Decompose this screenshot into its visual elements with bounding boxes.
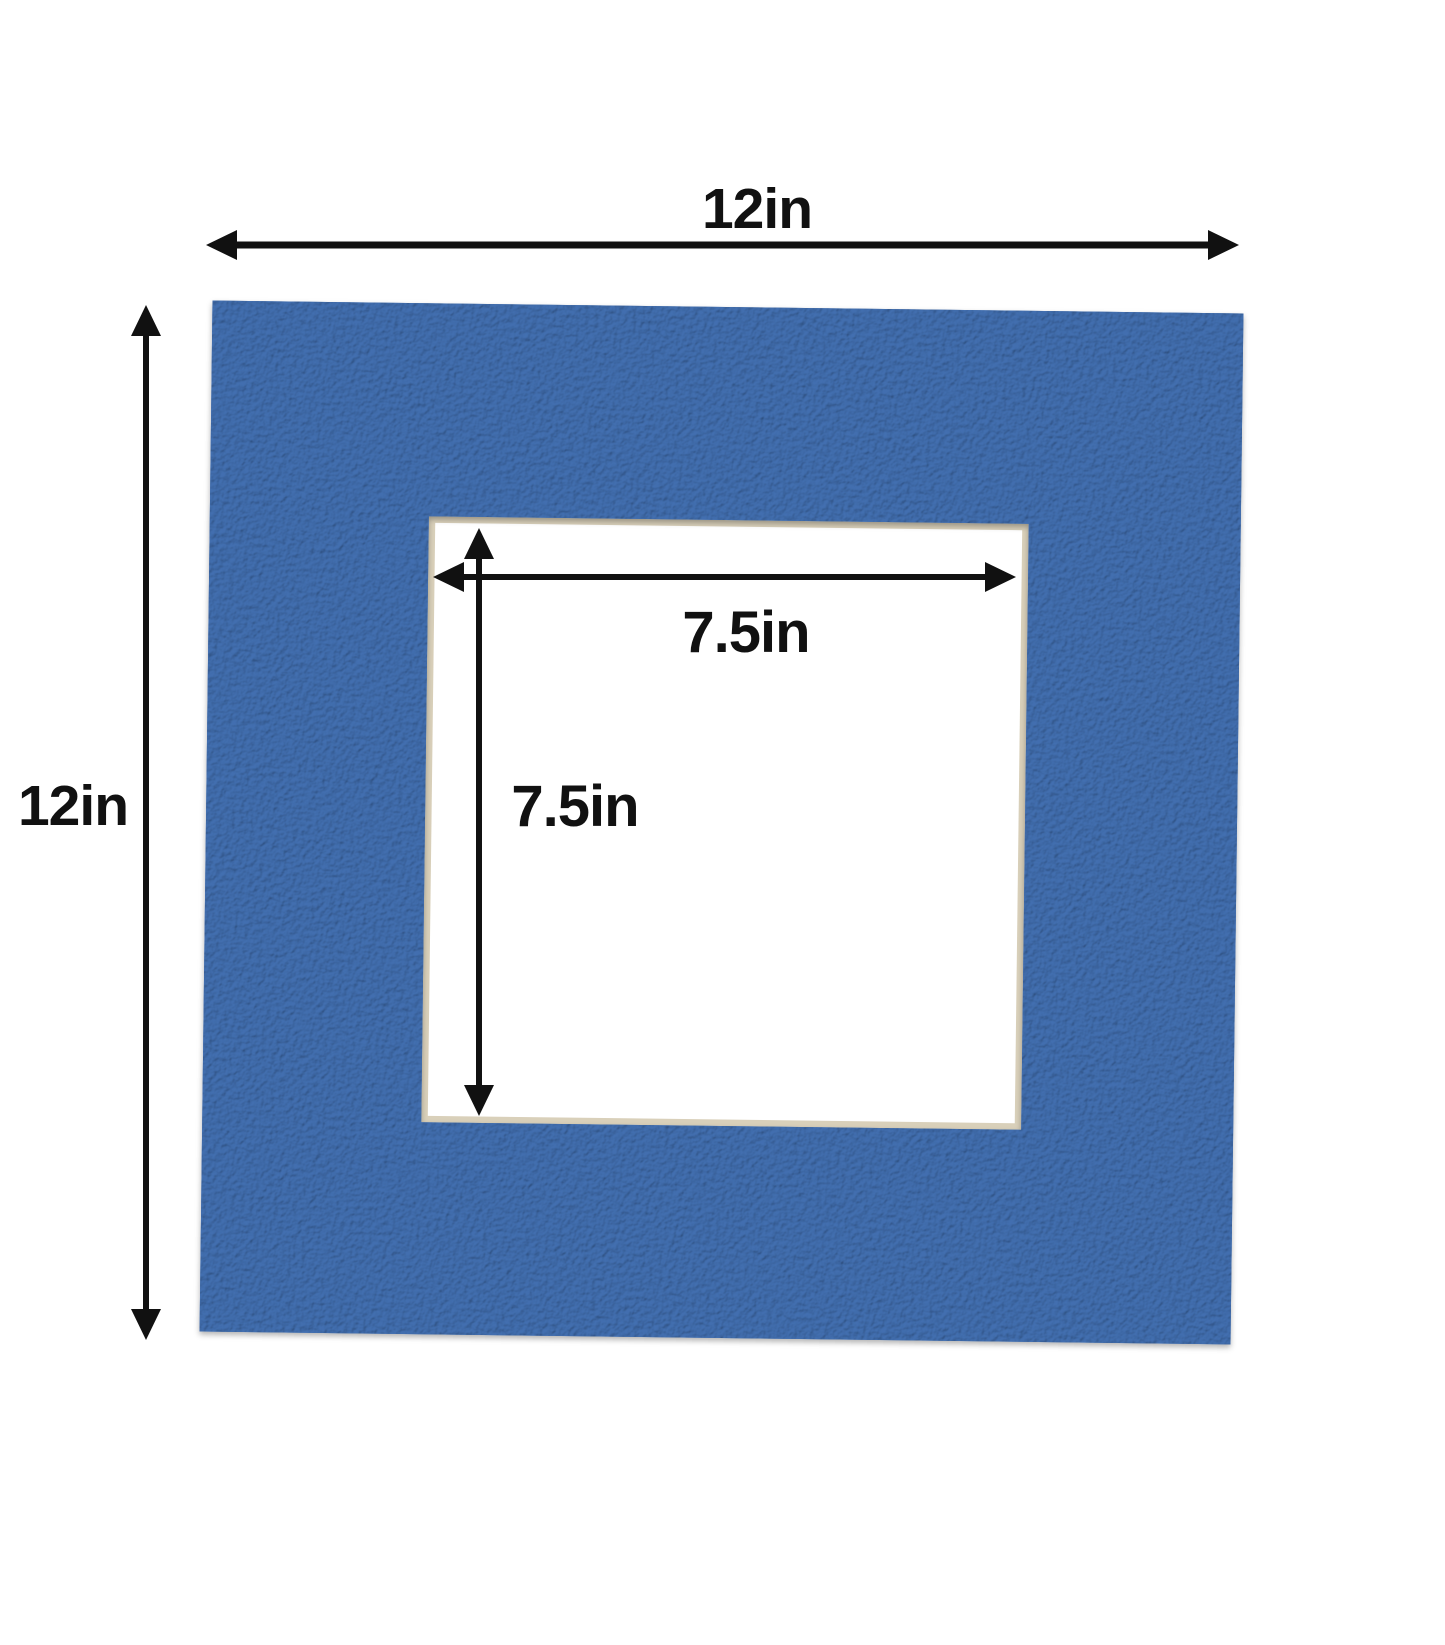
svg-text:7.5in: 7.5in [682, 600, 809, 665]
svg-text:7.5in: 7.5in [511, 774, 638, 839]
svg-text:12in: 12in [702, 177, 812, 241]
svg-text:12in: 12in [18, 774, 128, 838]
